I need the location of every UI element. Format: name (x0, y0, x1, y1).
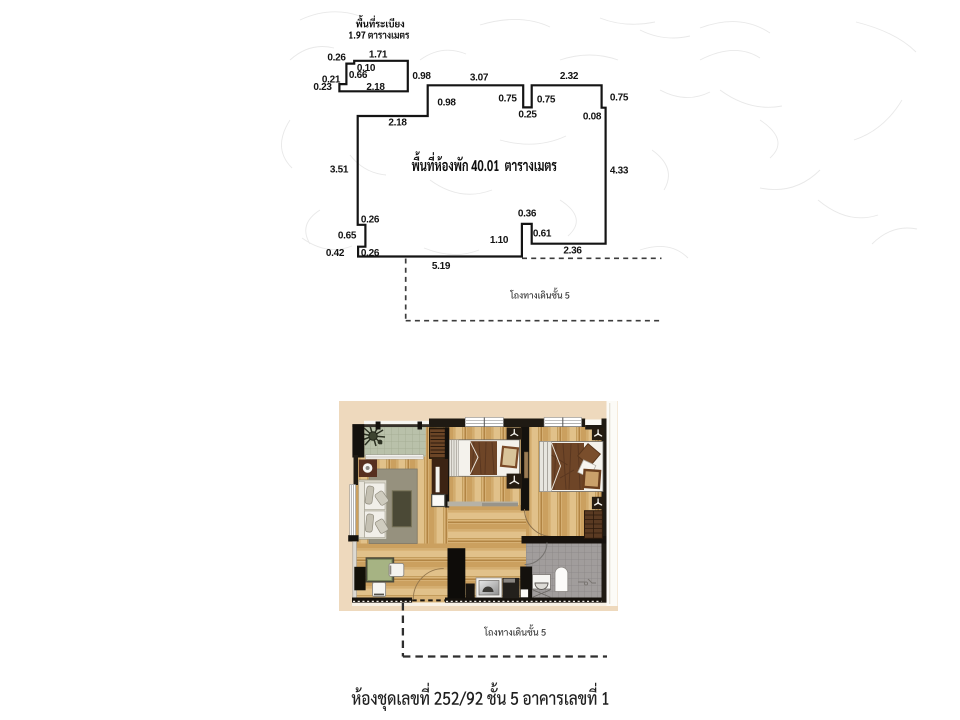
svg-text:0.36: 0.36 (518, 209, 537, 220)
svg-text:2.36: 2.36 (563, 246, 582, 257)
svg-text:0.25: 0.25 (518, 110, 537, 121)
svg-text:0.23: 0.23 (313, 82, 332, 93)
svg-text:3.07: 3.07 (470, 73, 489, 84)
svg-text:0.08: 0.08 (583, 112, 602, 123)
svg-text:2.32: 2.32 (560, 71, 579, 82)
svg-text:4.33: 4.33 (610, 166, 629, 177)
svg-text:3.51: 3.51 (330, 165, 349, 176)
svg-text:0.75: 0.75 (498, 94, 517, 105)
svg-text:0.42: 0.42 (326, 248, 345, 259)
svg-text:5.19: 5.19 (432, 261, 451, 272)
svg-text:0.75: 0.75 (610, 93, 629, 104)
svg-text:2.18: 2.18 (388, 118, 407, 129)
svg-text:0.66: 0.66 (349, 70, 368, 81)
svg-text:0.26: 0.26 (327, 53, 346, 64)
svg-text:1.10: 1.10 (490, 235, 509, 246)
svg-text:0.75: 0.75 (537, 95, 556, 106)
svg-text:0.98: 0.98 (437, 98, 456, 109)
svg-text:0.65: 0.65 (338, 231, 357, 242)
svg-text:2.18: 2.18 (366, 82, 385, 93)
svg-text:0.26: 0.26 (361, 215, 380, 226)
svg-text:0.26: 0.26 (361, 248, 380, 259)
svg-text:0.98: 0.98 (412, 71, 431, 82)
svg-text:1.71: 1.71 (369, 50, 388, 61)
svg-text:0.61: 0.61 (533, 229, 552, 240)
